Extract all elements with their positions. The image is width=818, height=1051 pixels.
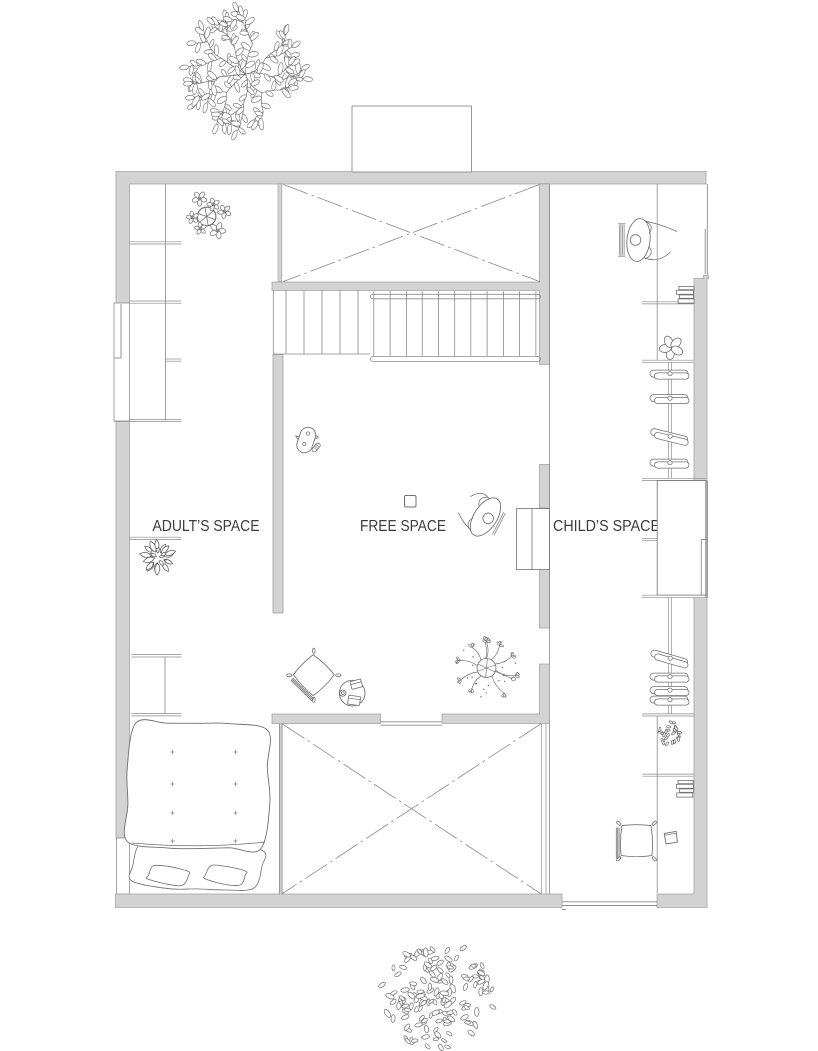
svg-text:ADULT’S SPACE: ADULT’S SPACE bbox=[153, 518, 260, 535]
svg-text:FREE SPACE: FREE SPACE bbox=[360, 518, 446, 535]
svg-text:CHILD’S SPACE: CHILD’S SPACE bbox=[553, 518, 660, 535]
